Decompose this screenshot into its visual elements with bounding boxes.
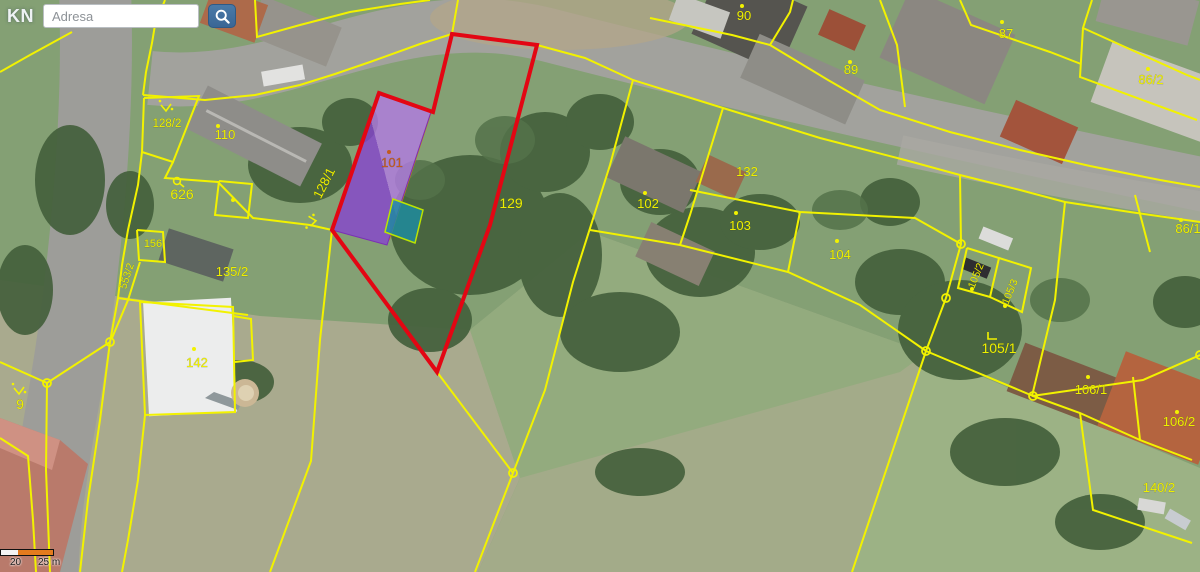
parcel-label-102: 102 — [637, 196, 659, 211]
parcel-point — [1146, 67, 1150, 71]
parcel-label-140/2: 140/2 — [1143, 480, 1176, 495]
search-icon — [214, 8, 231, 25]
parcel-label-129: 129 — [499, 195, 523, 211]
parcel-label-101: 101 — [381, 155, 403, 170]
parcel-label-110: 110 — [215, 127, 236, 142]
scale-label-20: 20 — [10, 557, 21, 568]
parcel-label-156: 156 — [144, 238, 162, 250]
parcel-label-106/1: 106/1 — [1075, 382, 1108, 397]
building-parcel-point — [387, 150, 391, 154]
parcel-point — [231, 198, 235, 202]
parcel-label-104: 104 — [829, 247, 851, 262]
parcel-point — [192, 347, 196, 351]
parcel-label-626: 626 — [170, 186, 194, 202]
parcel-label-89: 89 — [844, 62, 858, 77]
parcel-label-106/2: 106/2 — [1163, 414, 1196, 429]
parcel-label-132: 132 — [736, 164, 758, 179]
parcel-label-9: 9 — [16, 396, 24, 412]
parcel-point — [1086, 375, 1090, 379]
address-search-input[interactable] — [43, 4, 199, 28]
scale-segment-orange — [18, 550, 53, 555]
parcel-label-86/2: 86/2 — [1138, 72, 1163, 87]
parcel-label-128/2: 128/2 — [153, 118, 182, 130]
parcel-label-103: 103 — [729, 218, 751, 233]
parcel-label-90: 90 — [737, 8, 751, 23]
search-button[interactable] — [208, 4, 236, 28]
aerial-background — [0, 0, 1200, 572]
scale-bar-segments — [0, 549, 54, 556]
parcel-label-105/1: 105/1 — [981, 340, 1016, 356]
parcel-label-87: 87 — [999, 26, 1013, 41]
parcel-point — [734, 211, 738, 215]
cadastral-map-app: 90898786/286/1110128/2626128/11011291321… — [0, 0, 1200, 572]
parcel-label-135/2: 135/2 — [216, 264, 249, 279]
parcel-label-86/1: 86/1 — [1175, 221, 1200, 236]
search-bar: KN — [7, 4, 236, 28]
scale-segment-white — [1, 550, 18, 555]
scale-label-25m: 25 m — [38, 557, 60, 568]
layer-kn-label: KN — [7, 6, 34, 27]
parcel-point — [1000, 20, 1004, 24]
parcel-label-142: 142 — [186, 355, 208, 370]
parcel-point — [835, 239, 839, 243]
map-canvas[interactable]: 90898786/286/1110128/2626128/11011291321… — [0, 0, 1200, 572]
parcel-point — [643, 191, 647, 195]
scale-bar: 20 25 m — [0, 549, 90, 569]
